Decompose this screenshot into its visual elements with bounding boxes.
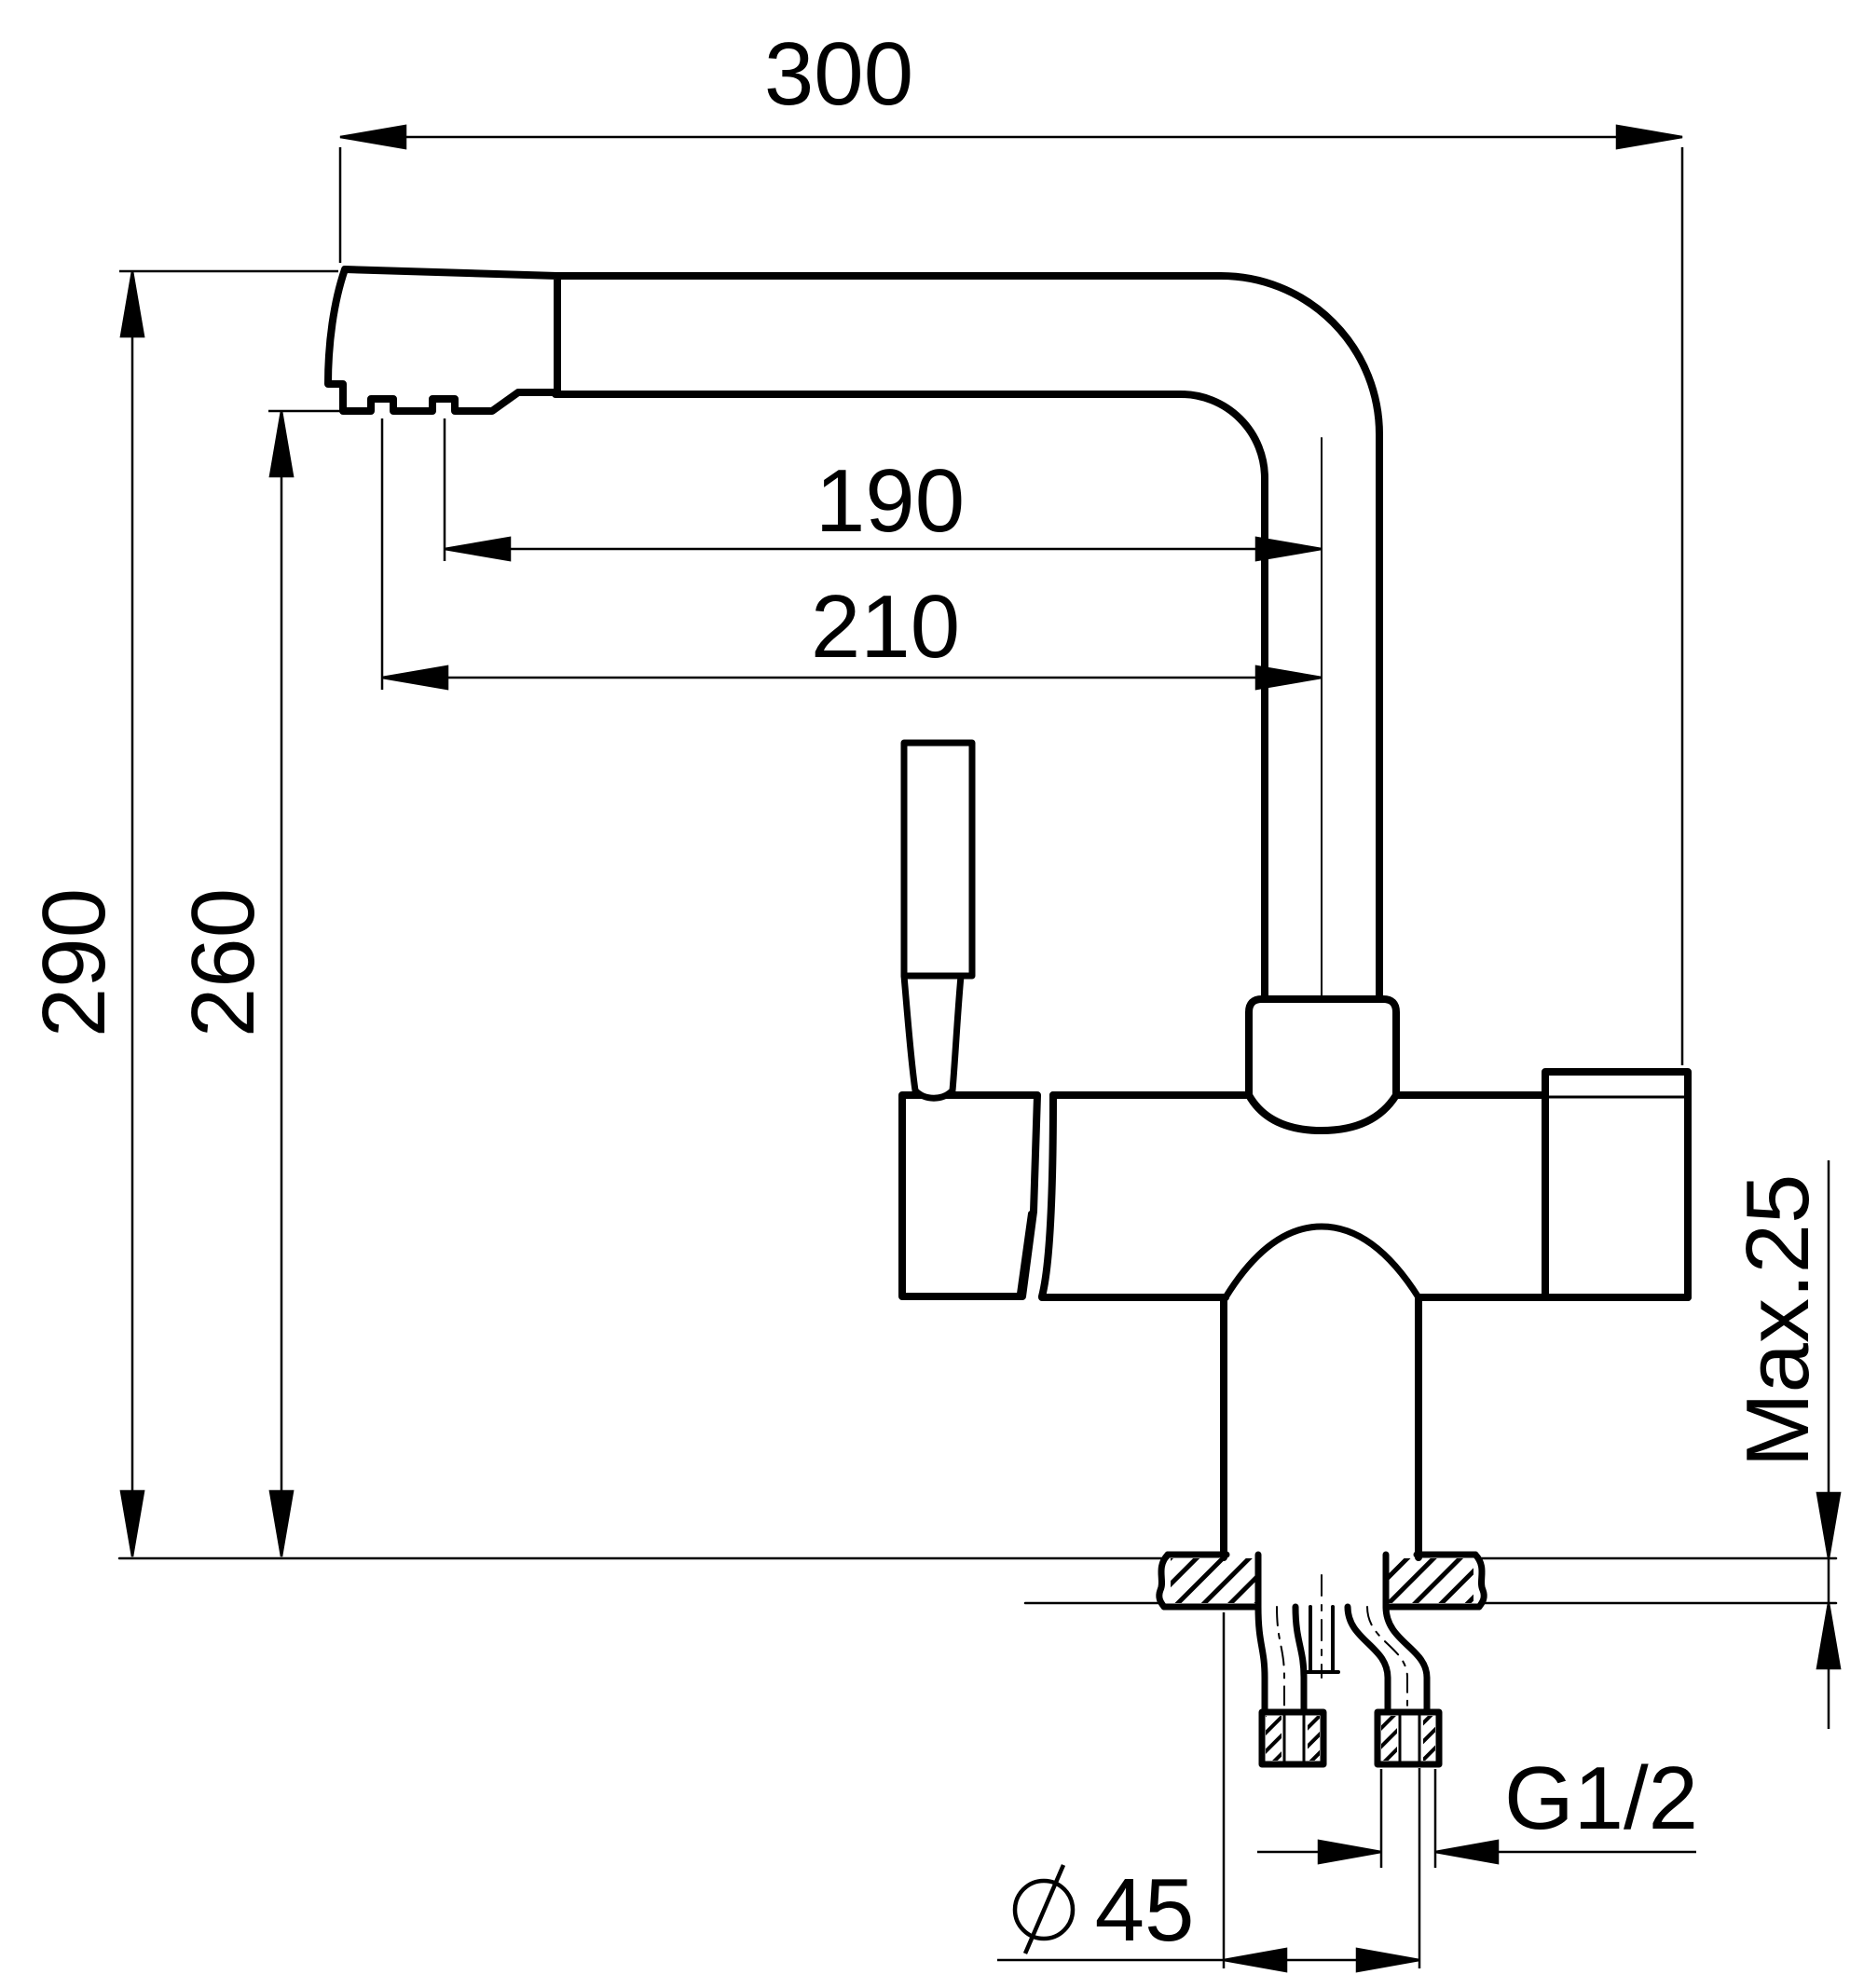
- hose-right-inner: [1348, 1607, 1388, 1715]
- dimension-260: [268, 411, 342, 1556]
- dim-260-label: 260: [173, 888, 273, 1037]
- arrowhead-down-icon: [1817, 1493, 1840, 1558]
- deck-hatch-right: [1389, 1558, 1473, 1603]
- drawing-sheet: 300 190 210 290 260 Max.25 G1/2 45: [0, 0, 1864, 1988]
- dim-290-label: 290: [24, 888, 124, 1037]
- arrowhead-down-icon: [121, 1491, 144, 1556]
- arrowhead-left-icon: [1435, 1841, 1498, 1863]
- lever-stem: [904, 976, 961, 1098]
- dim-300-label: 300: [764, 24, 913, 124]
- arrowhead-left-icon: [340, 126, 405, 148]
- hose-right-outer: [1386, 1607, 1427, 1715]
- body-waist-curve: [1226, 1227, 1419, 1297]
- arrowhead-up-icon: [1817, 1603, 1840, 1668]
- dimension-d45: [997, 1612, 1419, 1971]
- hose-fitting-left: [1262, 1712, 1323, 1764]
- dim-190-label: 190: [815, 451, 965, 551]
- arrowhead-right-icon: [1617, 126, 1682, 148]
- arrowhead-up-icon: [270, 411, 293, 476]
- arrowhead-right-icon: [1319, 1841, 1381, 1863]
- hose-fitting-right: [1377, 1712, 1439, 1764]
- handle-housing: [902, 1095, 1037, 1296]
- arrowhead-down-icon: [270, 1491, 293, 1556]
- supply-hoses: [1258, 1575, 1439, 1764]
- hose-left-outer: [1258, 1607, 1265, 1715]
- arrowhead-up-icon: [121, 271, 144, 336]
- deck-hatch-left: [1171, 1558, 1256, 1603]
- body-left-edge: [1042, 1095, 1053, 1296]
- pipe-collar: [1249, 999, 1396, 1131]
- hose-left-inner: [1295, 1607, 1304, 1715]
- arrowhead-left-icon: [445, 538, 510, 560]
- countertop-section: [119, 1555, 1836, 1607]
- side-outlet-cap: [1545, 1072, 1688, 1297]
- diameter-icon: [1015, 1865, 1073, 1954]
- deck-break-left: [1159, 1555, 1168, 1607]
- dim-45-label: 45: [1095, 1860, 1195, 1960]
- faucet-outline: [328, 269, 1688, 1557]
- faucet-technical-drawing: 300 190 210 290 260 Max.25 G1/2 45: [0, 0, 1864, 1988]
- deck-break-right: [1475, 1555, 1484, 1607]
- dimension-300: [340, 126, 1682, 1065]
- lever-grip: [904, 743, 972, 976]
- arrowhead-left-icon: [1224, 1949, 1286, 1971]
- dim-g12-label: G1/2: [1504, 1748, 1698, 1848]
- spout-head: [328, 269, 557, 411]
- arrowhead-left-icon: [382, 666, 447, 689]
- dim-max25-label: Max.25: [1728, 1174, 1828, 1468]
- arrowhead-right-icon: [1357, 1949, 1419, 1971]
- dim-210-label: 210: [811, 577, 960, 677]
